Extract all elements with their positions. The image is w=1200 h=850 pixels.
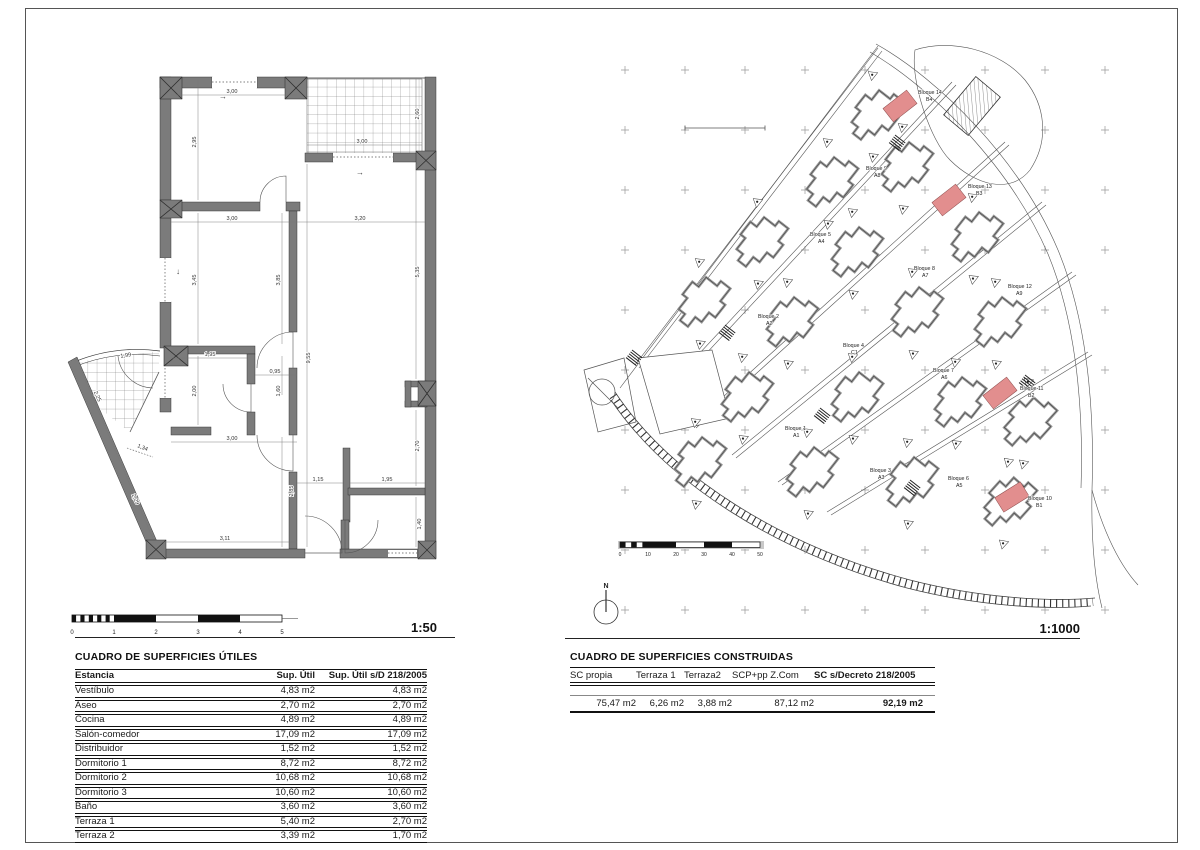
utiles-header-row: Estancia Sup. Útil Sup. Útil s/D 218/200…: [75, 669, 427, 683]
svg-text:A6: A6: [941, 375, 948, 381]
site-footer-rule: [565, 638, 1080, 639]
svg-text:1: 1: [112, 630, 116, 636]
plan-scale-bar: 0 1 2 3 4 5: [66, 610, 306, 640]
arrow-right-icon: →: [356, 168, 364, 177]
svg-text:5,35: 5,35: [415, 267, 421, 278]
table-row: Dormitorio 210,68 m210,68 m2: [75, 772, 427, 785]
superficies-utiles-table: CUADRO DE SUPERFICIES ÚTILES Estancia Su…: [75, 651, 435, 845]
svg-text:20: 20: [673, 552, 679, 558]
svg-text:50: 50: [757, 552, 763, 558]
table-row: Terraza 23,39 m21,70 m2: [75, 830, 427, 843]
svg-text:2,95: 2,95: [192, 137, 198, 148]
svg-text:0: 0: [619, 552, 622, 558]
col-sup-util: Sup. Útil: [235, 669, 315, 683]
table-row: Dormitorio 310,60 m210,60 m2: [75, 787, 427, 800]
svg-text:Bloque 13: Bloque 13: [968, 184, 992, 190]
svg-text:2,70: 2,70: [415, 441, 421, 452]
col-sc-decreto: SC s/Decreto 218/2005: [814, 670, 923, 681]
svg-text:A2: A2: [766, 321, 773, 327]
col-terraza2: Terraza2: [684, 670, 732, 681]
svg-text:Bloque 1: Bloque 1: [785, 426, 806, 432]
svg-text:Bloque 6: Bloque 6: [948, 476, 969, 482]
svg-text:1,95: 1,95: [205, 352, 216, 358]
table-row: Aseo2,70 m22,70 m2: [75, 700, 427, 713]
svg-text:C1: C1: [851, 350, 858, 356]
svg-text:Bloque 10: Bloque 10: [1028, 496, 1052, 502]
table-row: Cocina4,89 m24,89 m2: [75, 714, 427, 727]
svg-text:2,00: 2,00: [192, 386, 198, 397]
svg-text:B2: B2: [1028, 393, 1035, 399]
svg-text:A4: A4: [818, 239, 825, 245]
svg-text:B1: B1: [1036, 503, 1043, 509]
svg-text:3,45: 3,45: [192, 275, 198, 286]
svg-text:3,11: 3,11: [220, 536, 230, 542]
arrow-down-icon: ↓: [176, 267, 180, 276]
svg-text:2,85: 2,85: [289, 486, 295, 497]
svg-text:Bloque 2: Bloque 2: [758, 314, 779, 320]
arrow-right-icon: →: [219, 92, 227, 101]
svg-text:40: 40: [729, 552, 735, 558]
col-estancia: Estancia: [75, 669, 235, 683]
plan-scale-label: 1:50: [380, 620, 437, 635]
svg-text:Bloque 7: Bloque 7: [933, 368, 954, 374]
floor-plan: 3,00 2,60 3,00 2,95 3,00 3,20 3,45 3,85 …: [60, 50, 460, 610]
svg-text:3,00: 3,00: [357, 139, 368, 145]
val-scp-zcom: 87,12 m2: [732, 698, 814, 709]
utiles-title: CUADRO DE SUPERFICIES ÚTILES: [75, 651, 435, 663]
svg-text:Bloque 5: Bloque 5: [810, 232, 831, 238]
svg-text:3,00: 3,00: [227, 216, 238, 222]
svg-text:4: 4: [238, 630, 242, 636]
svg-text:3,00: 3,00: [227, 436, 238, 442]
col-sup-util-decreto: Sup. Útil s/D 218/2005: [315, 669, 427, 683]
col-terraza1: Terraza 1: [636, 670, 684, 681]
construidas-header-row: SC propia Terraza 1 Terraza2 SCP+pp Z.Co…: [570, 667, 935, 683]
header-double-line: [570, 685, 935, 686]
site-scale-label: 1:1000: [1020, 621, 1080, 636]
table-row: Salón-comedor17,09 m217,09 m2: [75, 729, 427, 742]
plan-scale-ticks: 0 1 2 3 4 5: [70, 630, 284, 636]
svg-text:2,60: 2,60: [415, 109, 421, 120]
svg-text:1,40: 1,40: [417, 519, 423, 530]
svg-text:2: 2: [154, 630, 158, 636]
plan-footer-rule: [75, 637, 455, 638]
val-terraza1: 6,26 m2: [636, 698, 684, 709]
table-row: Dormitorio 18,72 m28,72 m2: [75, 758, 427, 771]
svg-text:Bloque 4: Bloque 4: [843, 343, 864, 349]
svg-text:9,55: 9,55: [306, 353, 312, 364]
svg-text:A7: A7: [922, 273, 929, 279]
construidas-data-wrap: 75,47 m2 6,26 m2 3,88 m2 87,12 m2 92,19 …: [570, 695, 935, 714]
table-row: Baño3,60 m23,60 m2: [75, 801, 427, 814]
val-terraza2: 3,88 m2: [684, 698, 732, 709]
svg-text:1,95: 1,95: [382, 477, 393, 483]
table-row: Vestíbulo4,83 m24,83 m2: [75, 685, 427, 698]
superficies-construidas-table: CUADRO DE SUPERFICIES CONSTRUIDAS SC pro…: [570, 651, 935, 713]
svg-text:5: 5: [280, 630, 284, 636]
svg-text:0,95: 0,95: [270, 369, 281, 375]
svg-text:1,60: 1,60: [276, 386, 282, 397]
svg-text:A5: A5: [956, 483, 963, 489]
svg-text:Bloque 3: Bloque 3: [870, 468, 891, 474]
svg-text:1,15: 1,15: [313, 477, 324, 483]
table-row: Distribuidor1,52 m21,52 m2: [75, 743, 427, 756]
val-sc-decreto: 92,19 m2: [814, 698, 923, 709]
svg-text:Bloque 8: Bloque 8: [914, 266, 935, 272]
svg-text:Bloque 11: Bloque 11: [1020, 386, 1044, 392]
svg-text:10: 10: [645, 552, 651, 558]
svg-text:A3: A3: [878, 475, 885, 481]
col-sc-propia: SC propia: [570, 670, 636, 681]
svg-text:Bloque 9: Bloque 9: [866, 166, 887, 172]
svg-text:B4: B4: [926, 97, 933, 103]
val-sc-propia: 75,47 m2: [570, 698, 636, 709]
construidas-data-row: 75,47 m2 6,26 m2 3,88 m2 87,12 m2 92,19 …: [570, 696, 935, 714]
table-row: Terraza 15,40 m22,70 m2: [75, 816, 427, 829]
svg-text:3,20: 3,20: [355, 216, 366, 222]
svg-text:A1: A1: [793, 433, 800, 439]
svg-text:Bloque 14: Bloque 14: [918, 90, 942, 96]
svg-text:N: N: [603, 583, 608, 590]
svg-text:A8: A8: [874, 173, 881, 179]
svg-text:3,85: 3,85: [276, 275, 282, 286]
site-plan: Bloque 1A1 Bloque 2A2 Bloque 3A3 Bloque …: [580, 20, 1140, 640]
svg-text:1,34: 1,34: [136, 443, 148, 453]
svg-text:Bloque 12: Bloque 12: [1008, 284, 1032, 290]
col-scp-zcom: SCP+pp Z.Com: [732, 670, 814, 681]
svg-text:B3: B3: [976, 191, 983, 197]
svg-text:30: 30: [701, 552, 707, 558]
construidas-title: CUADRO DE SUPERFICIES CONSTRUIDAS: [570, 651, 935, 663]
svg-text:3,00: 3,00: [227, 89, 238, 95]
svg-text:3: 3: [196, 630, 200, 636]
drawing-sheet: { "sheet": { "plan_scale": "1:50", "site…: [0, 0, 1200, 850]
svg-text:A9: A9: [1016, 291, 1023, 297]
svg-text:0: 0: [70, 630, 74, 636]
